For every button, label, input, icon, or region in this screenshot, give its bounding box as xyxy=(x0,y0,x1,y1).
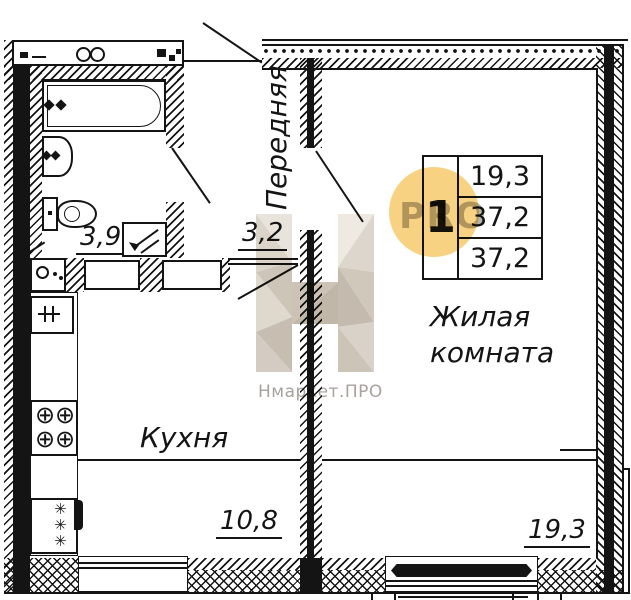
hall-cabinet xyxy=(162,260,222,290)
wall-left-core xyxy=(13,64,30,592)
hallway-label: Передняя xyxy=(263,90,291,210)
toilet-cistern-dot xyxy=(48,211,52,215)
washing-machine-dot xyxy=(53,272,57,276)
bathroom-area-label: 3,9 xyxy=(76,224,125,255)
wall-pier xyxy=(140,258,162,292)
brand-logo-icon xyxy=(254,212,376,376)
kitchen-sink-faucet xyxy=(38,313,60,315)
living-room-label-line2: комната xyxy=(430,339,554,367)
living-window-line xyxy=(385,585,538,587)
tick xyxy=(537,592,539,600)
fridge-snowflake-icon: ✳ xyxy=(54,534,67,549)
wall-bathroom-right-upper xyxy=(166,66,184,148)
wall-right-core xyxy=(604,44,614,592)
wall-bottom-seg xyxy=(188,558,300,570)
wall-bottom-right-corner xyxy=(538,570,622,592)
wall-top-outer-line xyxy=(262,39,628,41)
balcony-outline xyxy=(628,468,630,594)
floor-plan: 3,9 Передняя 3,2 ⊕ xyxy=(0,0,631,600)
wall-bottom-left-corner xyxy=(4,558,78,592)
wall-left-outer-hatch xyxy=(4,40,13,592)
fridge-snowflake-icon: ✳ xyxy=(54,518,67,533)
vent-detail xyxy=(169,55,175,61)
stove-burner-icon: ⊕ xyxy=(55,403,75,427)
wall-left-bathroom-lining xyxy=(30,66,42,258)
wall-edge xyxy=(262,68,596,70)
wall-bottom-seg xyxy=(188,570,300,592)
washing-machine-drum xyxy=(36,266,49,279)
kitchen-sink-faucet xyxy=(44,306,46,322)
living-window-sill xyxy=(391,564,532,577)
wall-right-outer-line xyxy=(622,44,624,592)
zone-line-short xyxy=(560,449,597,451)
stove-burner-icon: ⊕ xyxy=(35,427,55,451)
washing-machine-dot xyxy=(59,276,63,280)
balcony-edge-line xyxy=(398,596,528,598)
fridge-handle xyxy=(74,500,83,530)
tick xyxy=(394,592,396,600)
fridge-snowflake-icon: ✳ xyxy=(54,502,67,517)
stove-burner-icon: ⊕ xyxy=(55,427,75,451)
hall-cabinet xyxy=(84,260,140,290)
wall-bottom-seg xyxy=(322,570,385,592)
wall-bottom-partition-junction xyxy=(300,558,322,592)
wall-top-hatch-band xyxy=(262,58,622,68)
vent-detail xyxy=(176,49,181,54)
stove-burner-icon: ⊕ xyxy=(35,403,55,427)
vent-duct-icon xyxy=(90,47,105,62)
vent-detail xyxy=(157,49,166,57)
vent-detail xyxy=(32,56,46,58)
kitchen-window-line xyxy=(78,562,188,564)
entrance-threshold xyxy=(184,60,262,62)
kitchen-label: Кухня xyxy=(140,424,228,452)
watermark-brand-text: Нмаркет.ПРО xyxy=(258,382,383,402)
vent-duct-icon xyxy=(76,47,91,62)
zone-line-living xyxy=(322,459,596,461)
zone-line-kitchen xyxy=(78,459,300,461)
bathroom-door-swing xyxy=(171,147,211,203)
tick xyxy=(512,592,514,600)
watermark-pro-text: PRO xyxy=(399,196,487,237)
baseline xyxy=(4,592,628,594)
kitchen-window-line xyxy=(78,567,188,569)
vent-detail xyxy=(20,52,28,58)
wall-bathroom-top xyxy=(4,66,184,80)
wall-edge xyxy=(596,68,598,558)
wall-top-dot-band xyxy=(262,46,622,58)
living-room-label-line1: Жилая xyxy=(430,303,554,331)
kitchen-sink-faucet xyxy=(52,306,54,322)
tick xyxy=(371,592,373,600)
living-window-line xyxy=(385,580,538,582)
stove-icon: ⊕ ⊕ ⊕ ⊕ xyxy=(30,400,78,456)
tick xyxy=(560,592,562,600)
living-room-label: Жилая комната xyxy=(430,303,554,367)
wall-pier xyxy=(66,258,84,292)
toilet-bowl-inner xyxy=(64,206,80,222)
wall-partition-upper-core xyxy=(307,58,314,148)
fridge-icon: ✳ ✳ ✳ xyxy=(30,498,78,554)
info-table-cell-full: 37,2 xyxy=(459,239,541,278)
wall-bathroom-right-lower xyxy=(166,202,184,258)
living-area-label: 19,3 xyxy=(524,517,590,548)
kitchen-area-label: 10,8 xyxy=(216,508,282,539)
wall-bottom-seg xyxy=(538,558,596,570)
entrance-door-swing xyxy=(202,22,262,63)
wall-bottom-seg xyxy=(322,558,385,570)
